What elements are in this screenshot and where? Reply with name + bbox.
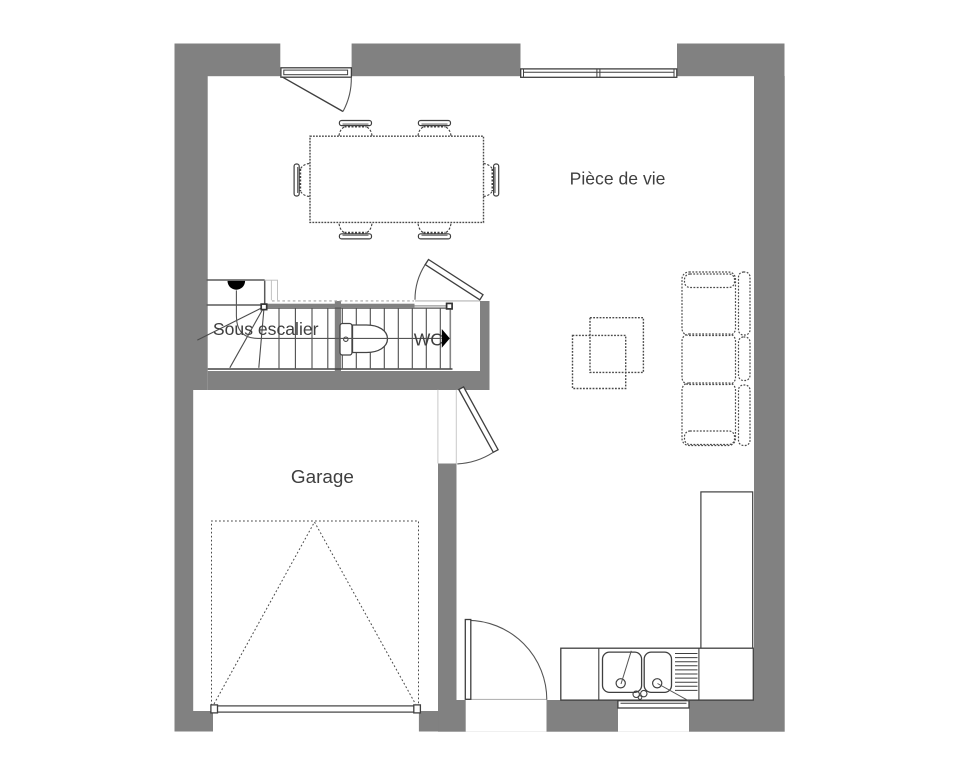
svg-text:Sous escalier: Sous escalier (213, 319, 319, 339)
svg-text:Pièce de vie: Pièce de vie (570, 168, 666, 188)
svg-text:Garage: Garage (291, 467, 354, 488)
svg-text:WC: WC (414, 329, 444, 349)
